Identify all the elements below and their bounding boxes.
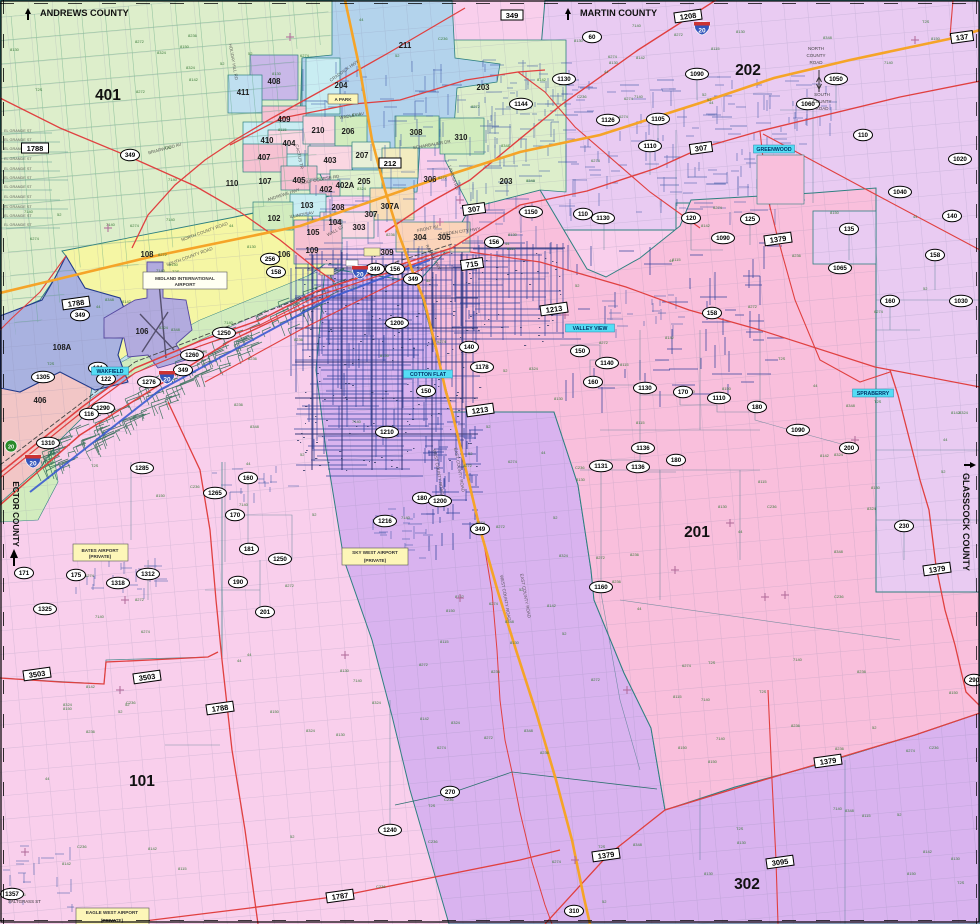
- svg-text:8272: 8272: [135, 39, 145, 44]
- svg-text:190: 190: [233, 579, 244, 586]
- svg-text:1140: 1140: [600, 360, 614, 367]
- svg-text:6274: 6274: [141, 629, 151, 634]
- svg-text:44: 44: [229, 223, 234, 228]
- svg-text:402A: 402A: [336, 181, 355, 190]
- svg-text:6274: 6274: [85, 573, 95, 578]
- svg-text:8272: 8272: [158, 252, 168, 257]
- svg-text:7140: 7140: [95, 614, 105, 619]
- svg-text:20: 20: [698, 28, 706, 35]
- svg-text:44: 44: [943, 437, 948, 442]
- svg-text:409: 409: [277, 115, 291, 124]
- svg-text:8150: 8150: [907, 871, 917, 876]
- svg-text:44: 44: [237, 658, 242, 663]
- svg-text:8142: 8142: [122, 299, 132, 304]
- svg-text:6274: 6274: [682, 663, 692, 668]
- svg-text:8130: 8130: [951, 856, 961, 861]
- svg-text:(PRIVATE): (PRIVATE): [89, 554, 112, 559]
- svg-text:202: 202: [735, 62, 761, 79]
- svg-text:106: 106: [135, 327, 149, 336]
- svg-text:T2S: T2S: [35, 87, 43, 92]
- svg-text:307: 307: [694, 143, 708, 154]
- svg-text:7140: 7140: [716, 736, 726, 741]
- svg-text:8130: 8130: [704, 871, 714, 876]
- svg-text:44: 44: [913, 214, 918, 219]
- svg-text:1144: 1144: [514, 101, 528, 108]
- svg-text:170: 170: [678, 389, 689, 396]
- svg-text:8348: 8348: [633, 842, 643, 847]
- svg-text:1240: 1240: [383, 827, 397, 834]
- svg-text:8142: 8142: [189, 77, 199, 82]
- svg-text:307: 307: [467, 204, 481, 215]
- svg-text:1250: 1250: [217, 330, 231, 337]
- svg-text:1136: 1136: [636, 445, 650, 452]
- svg-text:306: 306: [423, 175, 437, 184]
- svg-text:8130: 8130: [508, 232, 518, 237]
- svg-text:8115: 8115: [636, 420, 645, 425]
- svg-text:1312: 1312: [141, 571, 155, 578]
- svg-text:410: 410: [260, 136, 274, 145]
- svg-text:7140: 7140: [239, 502, 249, 507]
- svg-text:108A: 108A: [53, 343, 72, 352]
- svg-text:8348: 8348: [526, 178, 536, 183]
- svg-text:407: 407: [257, 153, 270, 162]
- svg-text:1200: 1200: [390, 320, 404, 327]
- svg-text:1357: 1357: [5, 891, 19, 898]
- svg-text:101: 101: [129, 773, 155, 790]
- svg-text:8130: 8130: [510, 640, 520, 645]
- svg-text:MIDLAND INTERNATIONAL: MIDLAND INTERNATIONAL: [155, 276, 215, 281]
- svg-text:52: 52: [125, 702, 130, 707]
- svg-text:8115: 8115: [440, 639, 449, 644]
- svg-text:180: 180: [417, 495, 428, 502]
- svg-text:1131: 1131: [594, 463, 608, 470]
- svg-text:180: 180: [671, 457, 682, 464]
- svg-text:150: 150: [421, 388, 432, 395]
- svg-text:8324: 8324: [186, 65, 196, 70]
- svg-text:EL GRANDE ST: EL GRANDE ST: [4, 167, 32, 171]
- svg-text:52: 52: [290, 834, 295, 839]
- svg-text:1178: 1178: [475, 364, 489, 371]
- svg-text:201: 201: [684, 524, 710, 541]
- svg-text:349: 349: [75, 312, 86, 319]
- svg-text:8130: 8130: [380, 353, 390, 358]
- svg-text:8130: 8130: [737, 840, 747, 845]
- svg-text:8236: 8236: [630, 552, 640, 557]
- svg-text:109: 109: [305, 246, 319, 255]
- svg-text:290: 290: [969, 677, 980, 684]
- svg-text:8150: 8150: [830, 210, 840, 215]
- svg-text:ROAD: ROAD: [809, 60, 823, 65]
- svg-text:8142: 8142: [420, 716, 430, 721]
- svg-text:201: 201: [260, 609, 271, 616]
- svg-text:8348: 8348: [834, 549, 844, 554]
- svg-text:7140: 7140: [401, 515, 411, 520]
- svg-text:8150: 8150: [180, 44, 190, 49]
- svg-text:52: 52: [312, 512, 317, 517]
- svg-text:715: 715: [465, 259, 479, 270]
- svg-text:8115: 8115: [278, 127, 287, 132]
- svg-text:203: 203: [476, 83, 490, 92]
- svg-text:1210: 1210: [380, 429, 394, 436]
- svg-text:8272: 8272: [438, 175, 448, 180]
- svg-text:T2S: T2S: [708, 660, 716, 665]
- svg-text:52: 52: [57, 212, 62, 217]
- svg-text:7140: 7140: [352, 419, 362, 424]
- svg-text:8324: 8324: [63, 702, 73, 707]
- svg-text:6274: 6274: [30, 236, 40, 241]
- svg-text:7140: 7140: [833, 806, 843, 811]
- svg-text:8142: 8142: [665, 335, 675, 340]
- svg-text:8150: 8150: [949, 690, 959, 695]
- svg-text:EL GRANDE ST: EL GRANDE ST: [4, 214, 32, 218]
- svg-text:8236: 8236: [792, 253, 802, 258]
- svg-text:1150: 1150: [524, 209, 538, 216]
- svg-text:402: 402: [319, 185, 333, 194]
- svg-text:180: 180: [752, 404, 763, 411]
- svg-text:349: 349: [475, 526, 486, 533]
- svg-text:8236: 8236: [791, 723, 801, 728]
- svg-text:8115: 8115: [758, 479, 767, 484]
- svg-text:171: 171: [19, 570, 30, 577]
- svg-text:52: 52: [503, 368, 508, 373]
- svg-text:8142: 8142: [820, 453, 830, 458]
- svg-text:52: 52: [553, 515, 558, 520]
- svg-text:8272: 8272: [599, 340, 609, 345]
- svg-text:8348: 8348: [501, 143, 511, 148]
- svg-text:C236: C236: [428, 839, 438, 844]
- svg-text:1040: 1040: [893, 189, 907, 196]
- svg-text:401: 401: [95, 87, 121, 104]
- svg-text:8150: 8150: [931, 36, 941, 41]
- svg-text:GLASSCOCK COUNTY: GLASSCOCK COUNTY: [961, 473, 971, 571]
- svg-text:8150: 8150: [156, 493, 166, 498]
- svg-text:107: 107: [258, 177, 271, 186]
- svg-text:7140: 7140: [353, 678, 363, 683]
- svg-text:160: 160: [885, 298, 896, 305]
- svg-text:7140: 7140: [106, 222, 116, 227]
- svg-text:122: 122: [101, 376, 112, 383]
- svg-text:256: 256: [265, 256, 276, 263]
- svg-text:211: 211: [399, 41, 412, 50]
- svg-text:310: 310: [569, 908, 580, 915]
- svg-text:175: 175: [71, 572, 82, 579]
- svg-text:8150: 8150: [270, 709, 280, 714]
- svg-text:8115: 8115: [507, 246, 516, 251]
- svg-text:158: 158: [271, 269, 282, 276]
- svg-text:1200: 1200: [433, 498, 447, 505]
- svg-text:ECTOR COUNTY: ECTOR COUNTY: [11, 481, 20, 547]
- svg-text:C236: C236: [929, 745, 939, 750]
- svg-text:8115: 8115: [672, 257, 681, 262]
- svg-text:44: 44: [246, 461, 251, 466]
- svg-text:1250: 1250: [273, 556, 287, 563]
- svg-text:230: 230: [899, 523, 910, 530]
- svg-text:1318: 1318: [111, 580, 125, 587]
- svg-text:1126: 1126: [601, 117, 615, 124]
- svg-text:6274: 6274: [591, 158, 601, 163]
- svg-text:200: 200: [844, 445, 855, 452]
- svg-text:8142: 8142: [148, 846, 158, 851]
- svg-text:ANDREWS COUNTY: ANDREWS COUNTY: [40, 8, 129, 18]
- svg-text:6274: 6274: [348, 285, 358, 290]
- svg-text:8324: 8324: [306, 728, 316, 733]
- svg-text:8130: 8130: [736, 29, 746, 34]
- svg-text:1065: 1065: [833, 265, 847, 272]
- svg-text:170: 170: [230, 512, 241, 519]
- svg-text:6274: 6274: [489, 601, 499, 606]
- svg-text:8130: 8130: [340, 668, 350, 673]
- svg-text:8272: 8272: [674, 32, 684, 37]
- svg-text:8272: 8272: [471, 104, 481, 109]
- svg-text:EL GRANDE ST: EL GRANDE ST: [4, 157, 32, 161]
- svg-text:8236: 8236: [612, 579, 622, 584]
- svg-text:1130: 1130: [596, 215, 610, 222]
- svg-text:52: 52: [486, 424, 491, 429]
- svg-text:T2S: T2S: [922, 19, 930, 24]
- svg-text:6274: 6274: [874, 309, 884, 314]
- svg-text:8130: 8130: [576, 477, 586, 482]
- svg-text:8324: 8324: [959, 410, 969, 415]
- svg-text:EL GRANDE ST: EL GRANDE ST: [4, 223, 32, 227]
- svg-text:8348: 8348: [105, 297, 115, 302]
- svg-text:140: 140: [947, 213, 958, 220]
- svg-text:8324: 8324: [529, 366, 539, 371]
- svg-text:8348: 8348: [845, 808, 855, 813]
- svg-text:20: 20: [163, 377, 171, 384]
- svg-text:403: 403: [323, 156, 337, 165]
- svg-text:8130: 8130: [574, 38, 584, 43]
- svg-text:303: 303: [352, 223, 366, 232]
- svg-text:8236: 8236: [234, 402, 244, 407]
- svg-text:8115: 8115: [673, 694, 682, 699]
- svg-text:8324: 8324: [357, 186, 367, 191]
- svg-text:T2S: T2S: [428, 803, 436, 808]
- svg-text:SKY WEST AIRPORT: SKY WEST AIRPORT: [352, 550, 398, 555]
- svg-text:C236: C236: [575, 465, 585, 470]
- svg-text:8130: 8130: [336, 732, 346, 737]
- svg-text:1285: 1285: [135, 465, 149, 472]
- svg-text:1030: 1030: [954, 298, 968, 305]
- svg-text:T2S: T2S: [736, 826, 744, 831]
- svg-text:310: 310: [454, 133, 468, 142]
- svg-text:7140: 7140: [634, 94, 644, 99]
- svg-text:6274: 6274: [608, 54, 618, 59]
- svg-text:8324: 8324: [559, 553, 569, 558]
- svg-text:52: 52: [923, 286, 928, 291]
- svg-text:110: 110: [858, 132, 869, 139]
- svg-text:SOUTH: SOUTH: [814, 92, 830, 97]
- svg-text:EL GRANDE ST: EL GRANDE ST: [4, 195, 32, 199]
- svg-text:8142: 8142: [537, 77, 547, 82]
- svg-text:349: 349: [408, 276, 419, 283]
- svg-text:8150: 8150: [708, 759, 718, 764]
- svg-text:208: 208: [331, 203, 345, 212]
- svg-text:6274: 6274: [508, 459, 518, 464]
- svg-text:8142: 8142: [701, 223, 711, 228]
- svg-text:1305: 1305: [36, 374, 50, 381]
- svg-text:EL GRANDE ST: EL GRANDE ST: [4, 138, 32, 142]
- svg-text:60: 60: [589, 34, 596, 41]
- svg-text:7140: 7140: [24, 209, 34, 214]
- svg-text:116: 116: [84, 411, 95, 418]
- svg-text:406: 406: [33, 396, 47, 405]
- svg-text:349: 349: [506, 11, 519, 20]
- svg-text:8142: 8142: [923, 849, 933, 854]
- svg-text:1325: 1325: [38, 606, 52, 613]
- svg-text:204: 204: [334, 81, 348, 90]
- svg-text:8142: 8142: [547, 603, 557, 608]
- svg-text:20: 20: [356, 272, 364, 279]
- svg-text:COUNTY: COUNTY: [807, 53, 826, 58]
- svg-text:181: 181: [244, 546, 255, 553]
- svg-text:8272: 8272: [496, 524, 506, 529]
- svg-text:210: 210: [311, 126, 325, 135]
- svg-text:1110: 1110: [712, 395, 726, 402]
- svg-text:1020: 1020: [953, 156, 967, 163]
- svg-text:8348: 8348: [250, 424, 260, 429]
- svg-text:102: 102: [267, 214, 281, 223]
- svg-text:160: 160: [243, 475, 254, 482]
- svg-text:308: 308: [409, 128, 423, 137]
- svg-text:8324: 8324: [867, 506, 877, 511]
- svg-text:C236: C236: [376, 884, 386, 889]
- svg-text:T2S: T2S: [91, 463, 99, 468]
- svg-text:207: 207: [355, 151, 368, 160]
- svg-text:44: 44: [637, 606, 642, 611]
- svg-text:8272: 8272: [136, 89, 146, 94]
- svg-text:EAGLE WEST AIRPORT: EAGLE WEST AIRPORT: [86, 910, 138, 915]
- svg-text:1136: 1136: [631, 464, 645, 471]
- svg-text:6274: 6274: [619, 114, 629, 119]
- svg-text:8130: 8130: [718, 504, 728, 509]
- svg-text:106: 106: [277, 250, 291, 259]
- svg-text:8130: 8130: [871, 485, 881, 490]
- svg-text:C236: C236: [190, 484, 200, 489]
- svg-text:205: 205: [357, 177, 371, 186]
- svg-text:158: 158: [930, 252, 941, 259]
- svg-text:8272: 8272: [419, 662, 429, 667]
- svg-text:44: 44: [45, 776, 50, 781]
- svg-text:8348: 8348: [846, 403, 856, 408]
- svg-text:T2S: T2S: [778, 356, 786, 361]
- svg-text:108: 108: [140, 250, 154, 259]
- svg-text:COTTON FLAT: COTTON FLAT: [410, 372, 447, 378]
- svg-text:7140: 7140: [884, 60, 894, 65]
- svg-text:212: 212: [384, 159, 397, 168]
- svg-text:408: 408: [267, 77, 281, 86]
- svg-text:1105: 1105: [651, 116, 665, 123]
- svg-text:302: 302: [734, 876, 760, 893]
- svg-text:103: 103: [300, 201, 314, 210]
- svg-text:8150: 8150: [446, 608, 456, 613]
- svg-text:137: 137: [955, 32, 969, 43]
- svg-text:52: 52: [220, 61, 225, 66]
- svg-text:8324: 8324: [834, 452, 844, 457]
- svg-text:7140: 7140: [793, 657, 803, 662]
- svg-text:6274: 6274: [552, 859, 562, 864]
- svg-text:52: 52: [468, 451, 473, 456]
- svg-text:105: 105: [306, 228, 320, 237]
- svg-text:52: 52: [897, 812, 902, 817]
- svg-text:52: 52: [707, 97, 712, 102]
- svg-text:52: 52: [562, 631, 567, 636]
- svg-text:8236: 8236: [188, 33, 198, 38]
- svg-text:1276: 1276: [142, 379, 156, 386]
- svg-text:C236: C236: [77, 844, 87, 849]
- svg-text:8115: 8115: [620, 362, 629, 367]
- svg-text:AIRPORT: AIRPORT: [175, 282, 196, 287]
- svg-text:EL GRANDE ST: EL GRANDE ST: [4, 176, 32, 180]
- svg-text:156: 156: [390, 266, 401, 273]
- svg-text:VALLEY VIEW: VALLEY VIEW: [573, 326, 608, 332]
- svg-text:SPRABERRY: SPRABERRY: [857, 391, 890, 397]
- svg-text:8130: 8130: [609, 60, 619, 65]
- svg-text:C236: C236: [834, 594, 844, 599]
- svg-text:270: 270: [445, 789, 456, 796]
- svg-text:8272: 8272: [463, 463, 473, 468]
- svg-text:206: 206: [341, 127, 355, 136]
- svg-text:307A: 307A: [381, 202, 400, 211]
- svg-text:7140: 7140: [166, 217, 176, 222]
- svg-text:1260: 1260: [185, 352, 199, 359]
- svg-text:WAKFIELD: WAKFIELD: [96, 369, 123, 375]
- svg-text:1090: 1090: [791, 427, 805, 434]
- svg-text:7140: 7140: [168, 177, 178, 182]
- svg-text:52: 52: [602, 899, 607, 904]
- svg-text:8236: 8236: [540, 750, 550, 755]
- svg-text:8150: 8150: [678, 745, 688, 750]
- svg-text:52: 52: [575, 283, 580, 288]
- svg-text:52: 52: [426, 278, 431, 283]
- svg-text:44: 44: [359, 17, 364, 22]
- svg-text:8236: 8236: [386, 232, 396, 237]
- svg-text:309: 309: [380, 248, 394, 257]
- svg-text:EL GRANDE ST: EL GRANDE ST: [4, 185, 32, 189]
- svg-text:44: 44: [813, 383, 818, 388]
- svg-text:8236: 8236: [294, 337, 304, 342]
- svg-text:T2S: T2S: [874, 399, 882, 404]
- svg-text:7140: 7140: [224, 320, 234, 325]
- svg-text:203: 203: [499, 177, 513, 186]
- svg-text:8150: 8150: [722, 386, 732, 391]
- svg-text:8130: 8130: [247, 244, 257, 249]
- svg-text:304: 304: [413, 233, 427, 242]
- svg-text:EL GRANDE ST: EL GRANDE ST: [4, 129, 32, 133]
- svg-text:1110: 1110: [643, 143, 657, 150]
- svg-text:A PARK: A PARK: [334, 97, 352, 102]
- svg-text:8272: 8272: [596, 555, 606, 560]
- svg-text:1130: 1130: [638, 385, 652, 392]
- svg-text:20: 20: [8, 445, 14, 451]
- svg-text:52: 52: [872, 725, 877, 730]
- svg-text:150: 150: [575, 348, 586, 355]
- svg-text:140: 140: [464, 344, 475, 351]
- svg-text:BATES AIRPORT: BATES AIRPORT: [81, 548, 118, 553]
- svg-text:8348: 8348: [524, 728, 534, 733]
- svg-text:8272: 8272: [484, 735, 494, 740]
- svg-text:349: 349: [125, 152, 136, 159]
- svg-text:GREENWOOD: GREENWOOD: [756, 147, 791, 153]
- svg-text:6274: 6274: [437, 745, 447, 750]
- svg-text:44: 44: [247, 652, 252, 657]
- svg-text:8236: 8236: [835, 746, 845, 751]
- svg-text:44: 44: [541, 450, 546, 455]
- svg-text:ROAD: ROAD: [815, 106, 829, 111]
- svg-text:1310: 1310: [41, 440, 55, 447]
- svg-text:1160: 1160: [594, 584, 608, 591]
- svg-text:8272: 8272: [748, 304, 758, 309]
- svg-text:COUNTY: COUNTY: [813, 99, 832, 104]
